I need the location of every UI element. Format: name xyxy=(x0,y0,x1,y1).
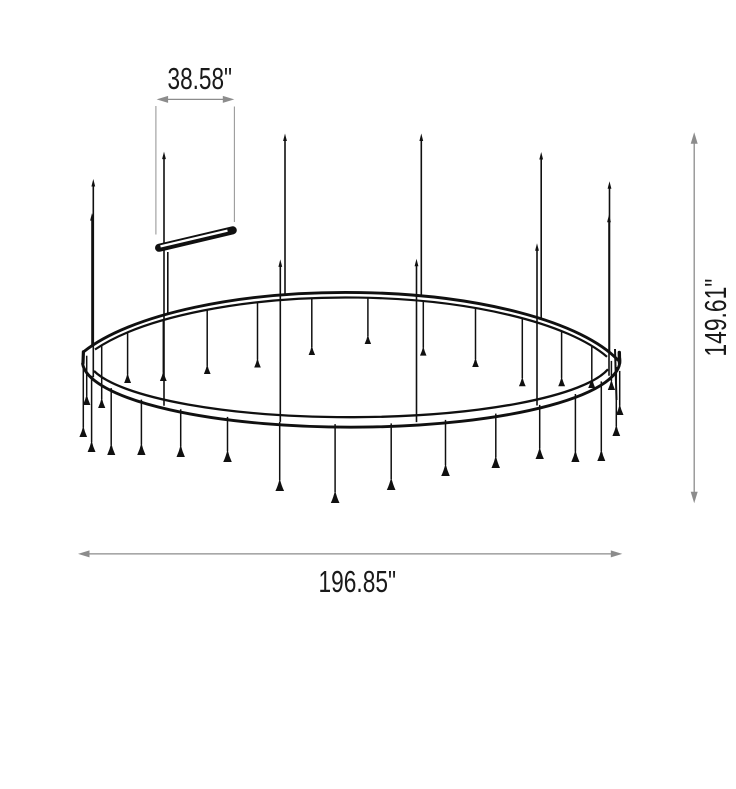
svg-text:38.58": 38.58" xyxy=(168,62,233,96)
svg-text:149.61": 149.61" xyxy=(699,279,733,357)
svg-text:196.85": 196.85" xyxy=(319,565,397,599)
